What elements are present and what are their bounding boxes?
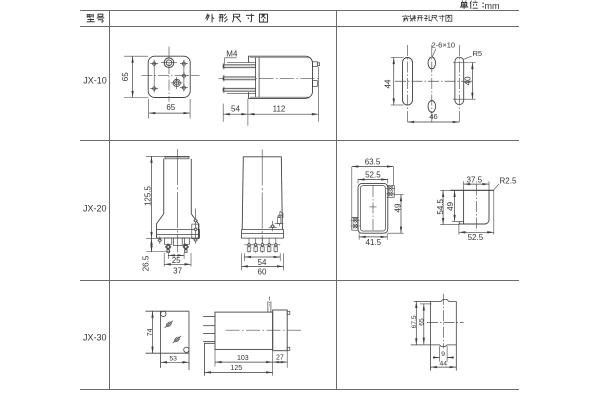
svg-text:112: 112 <box>273 105 286 114</box>
svg-text:54: 54 <box>231 105 240 114</box>
svg-text:52.5: 52.5 <box>468 233 484 242</box>
svg-text:65: 65 <box>121 72 130 81</box>
svg-text:103: 103 <box>237 355 249 362</box>
svg-text:JX-20: JX-20 <box>83 204 107 214</box>
svg-text:49: 49 <box>394 203 403 212</box>
svg-text:60: 60 <box>258 268 267 277</box>
svg-text:44: 44 <box>383 79 392 88</box>
svg-text:25: 25 <box>172 256 181 265</box>
svg-text:49: 49 <box>446 201 455 210</box>
svg-text:74: 74 <box>147 328 154 336</box>
svg-text:9: 9 <box>441 351 445 358</box>
svg-text:mm: mm <box>485 1 500 11</box>
svg-text:37: 37 <box>173 266 182 275</box>
svg-text:R2.5: R2.5 <box>500 176 517 185</box>
svg-text:41.5: 41.5 <box>366 238 382 247</box>
svg-text:54: 54 <box>258 258 267 267</box>
svg-text:65: 65 <box>166 103 175 112</box>
svg-text:125.5: 125.5 <box>143 185 152 206</box>
svg-text:125: 125 <box>230 365 242 372</box>
svg-text:26.5: 26.5 <box>141 255 150 271</box>
svg-text:27: 27 <box>276 355 284 362</box>
svg-text:R5: R5 <box>473 49 483 58</box>
svg-text:63.5: 63.5 <box>365 157 381 166</box>
svg-text:M4: M4 <box>226 49 238 58</box>
svg-text:37.5: 37.5 <box>467 176 483 185</box>
svg-text:54.5: 54.5 <box>436 198 445 214</box>
svg-text:67.5: 67.5 <box>411 315 418 328</box>
svg-text:40: 40 <box>463 76 472 85</box>
svg-text:52.5: 52.5 <box>365 170 381 179</box>
svg-text:65: 65 <box>418 318 425 326</box>
svg-text:2-6×10: 2-6×10 <box>432 41 456 50</box>
svg-text:46: 46 <box>429 112 437 121</box>
svg-text:53: 53 <box>169 355 177 362</box>
svg-text:JX-30: JX-30 <box>83 332 107 342</box>
svg-text:JX-10: JX-10 <box>83 76 107 86</box>
svg-text:44: 44 <box>440 360 448 367</box>
